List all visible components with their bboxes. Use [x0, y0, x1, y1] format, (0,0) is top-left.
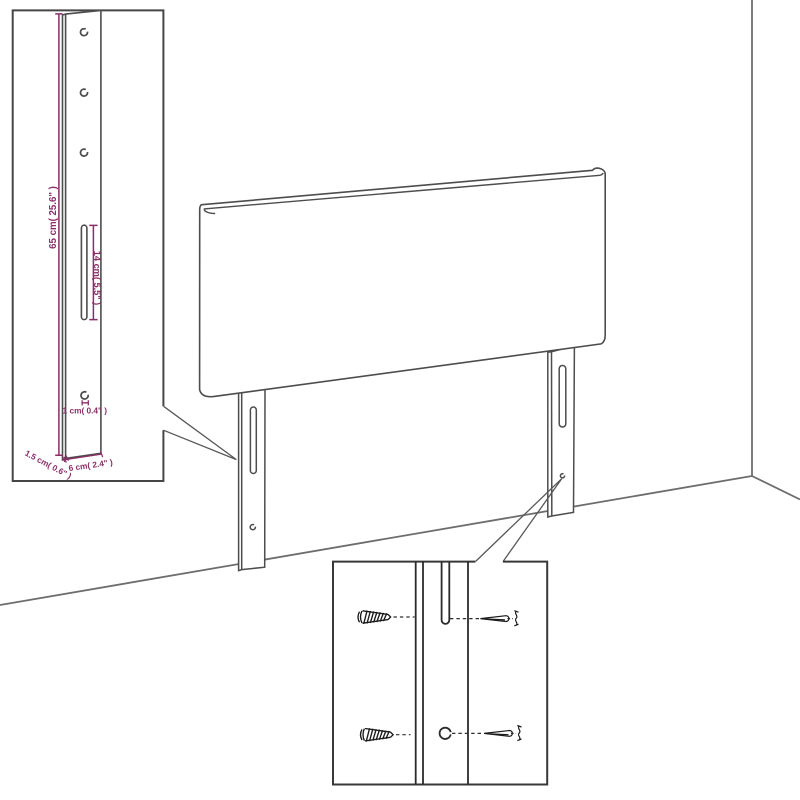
svg-text:14 cm( 5.5" ): 14 cm( 5.5" )	[92, 251, 102, 305]
svg-text:1 cm( 0.4" ): 1 cm( 0.4" )	[63, 406, 108, 416]
svg-text:65 cm( 25.6" ): 65 cm( 25.6" )	[48, 186, 59, 249]
